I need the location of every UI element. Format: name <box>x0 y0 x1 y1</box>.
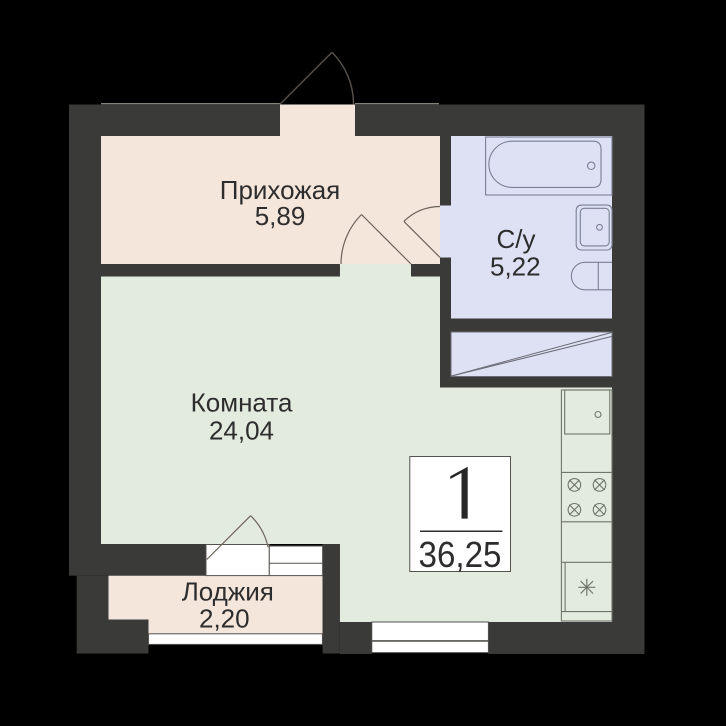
svg-text:С/у: С/у <box>497 224 536 254</box>
svg-text:2,20: 2,20 <box>199 603 250 633</box>
svg-text:Лоджия: Лоджия <box>182 576 274 606</box>
svg-text:5,89: 5,89 <box>255 201 306 231</box>
svg-text:24,04: 24,04 <box>209 416 274 446</box>
svg-text:5,22: 5,22 <box>490 252 541 282</box>
svg-text:Комната: Комната <box>191 387 293 417</box>
svg-text:36,25: 36,25 <box>419 534 502 575</box>
